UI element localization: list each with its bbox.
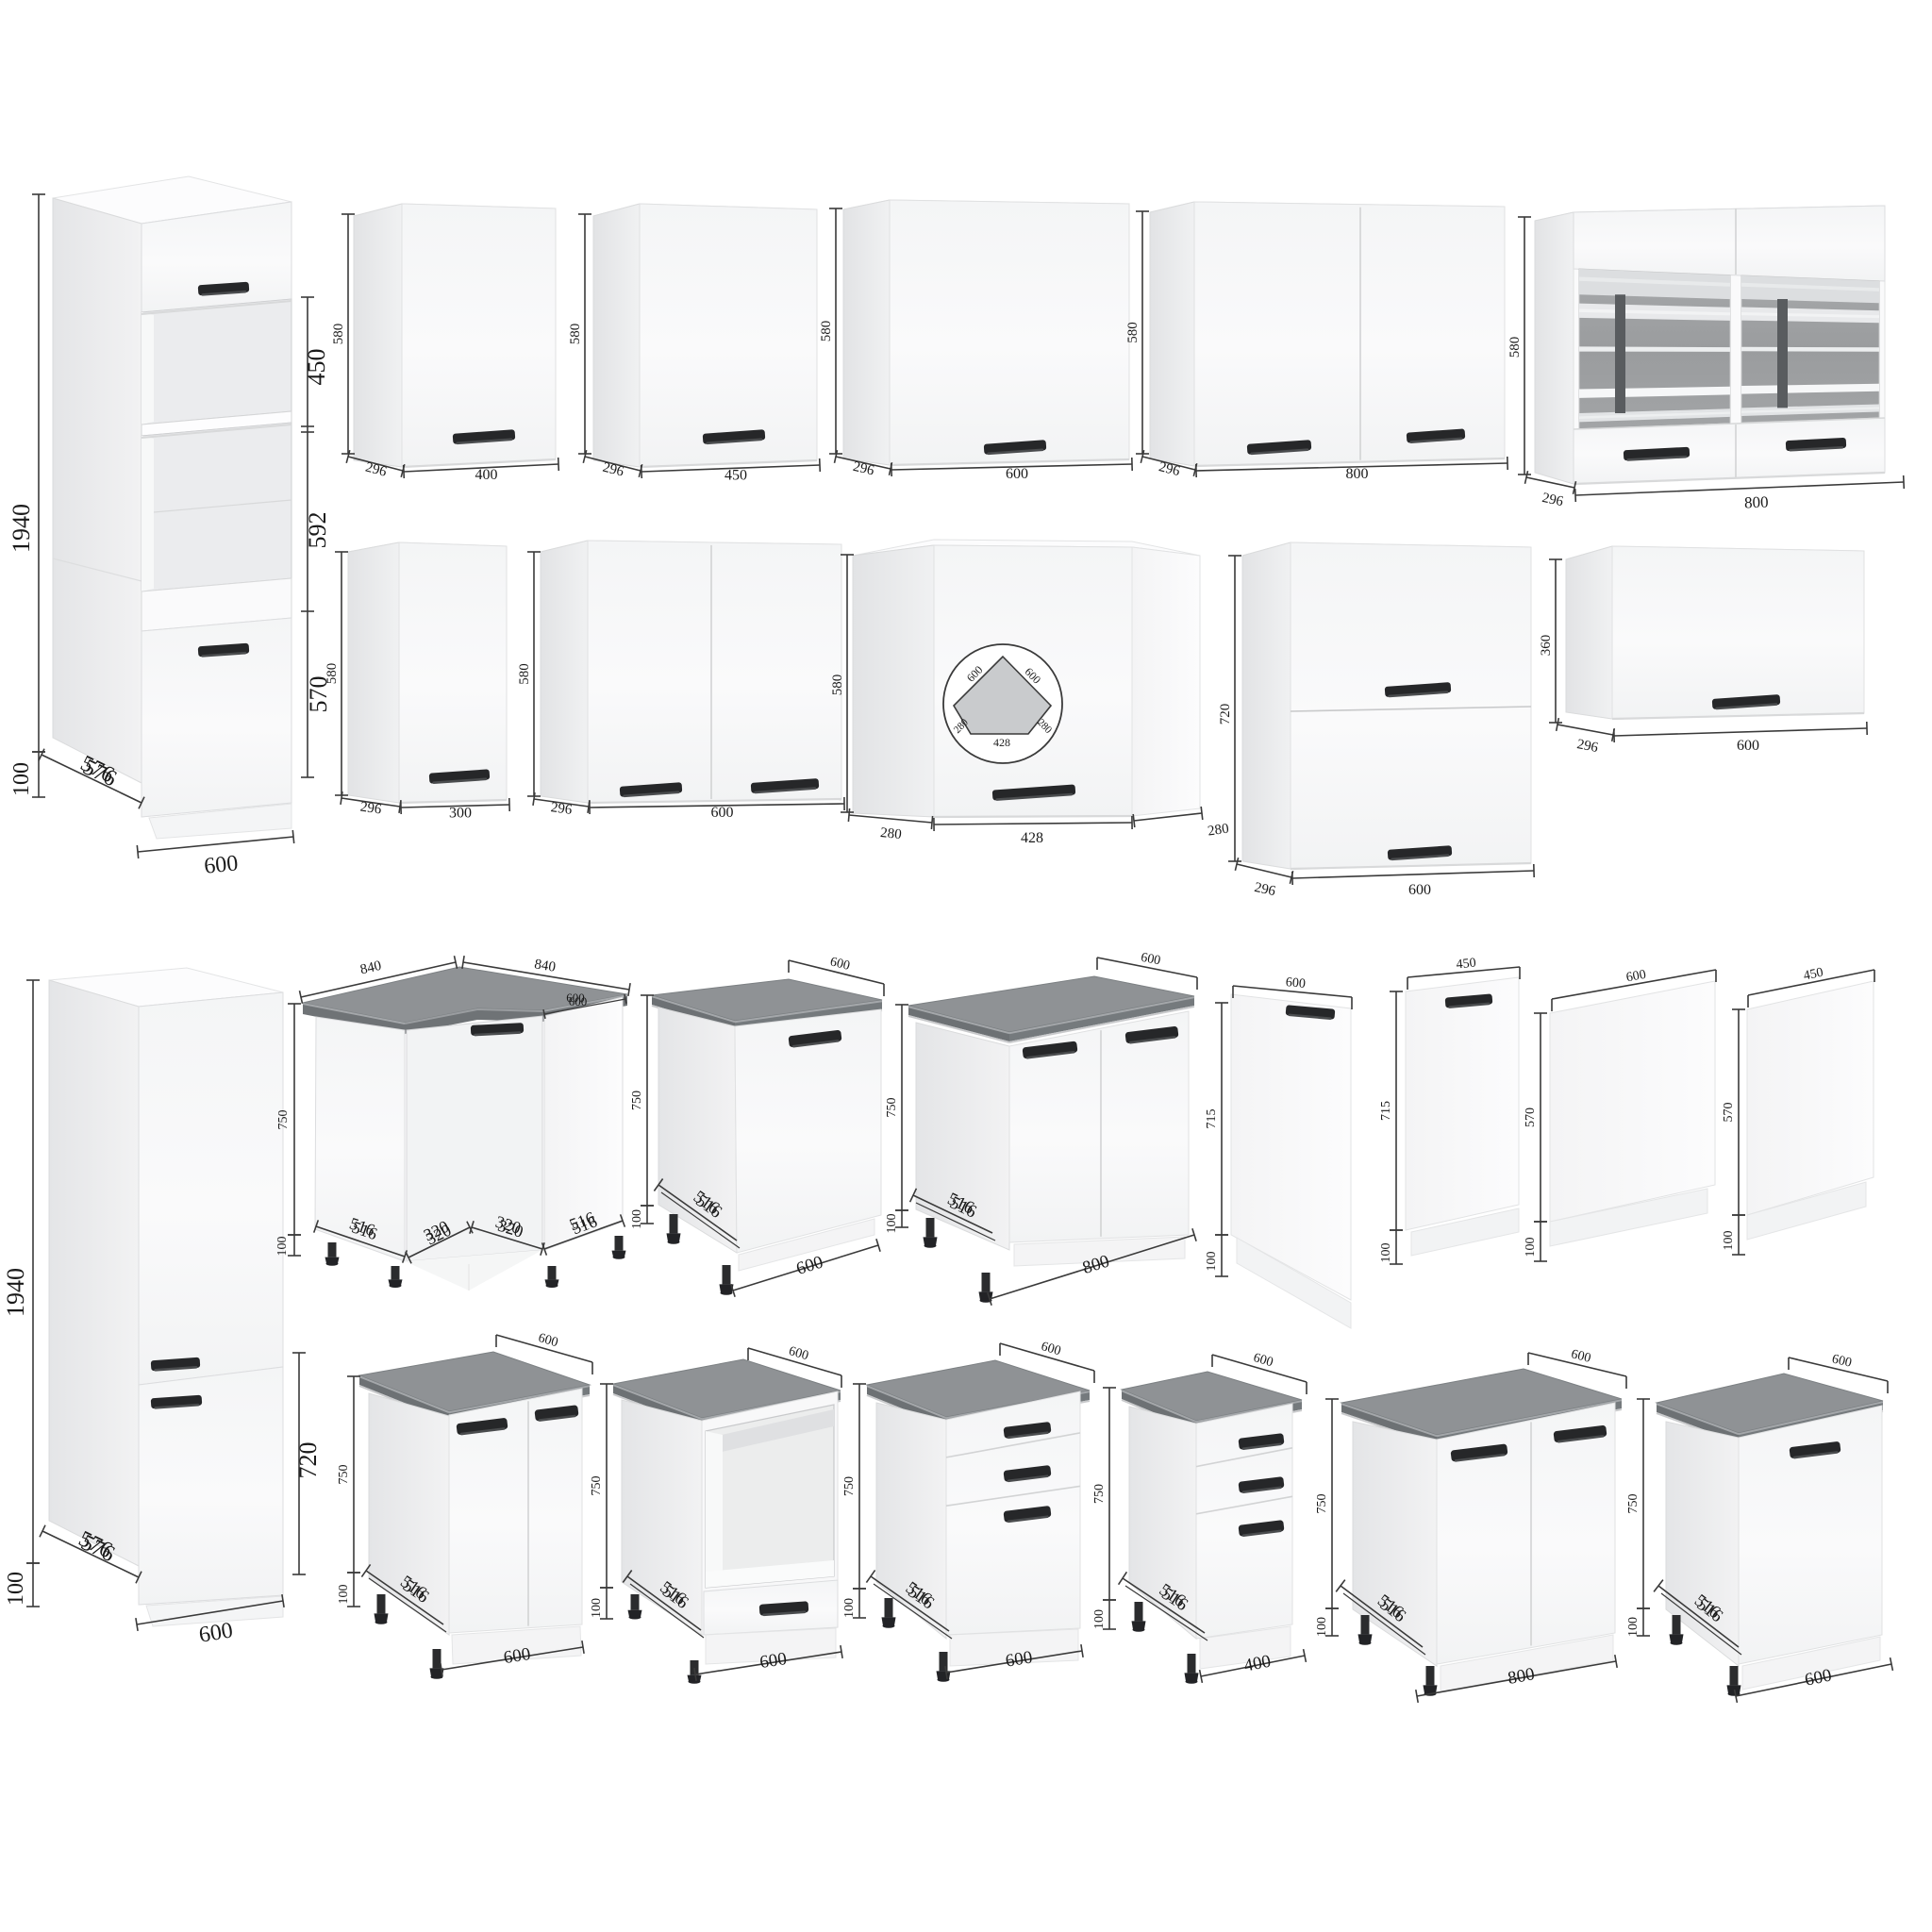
svg-text:750: 750 — [1626, 1494, 1641, 1514]
svg-text:750: 750 — [842, 1476, 857, 1496]
svg-text:296: 296 — [1541, 491, 1565, 509]
svg-text:600: 600 — [1285, 975, 1306, 991]
svg-text:296: 296 — [359, 800, 383, 818]
svg-text:600: 600 — [1408, 882, 1431, 898]
svg-text:570: 570 — [305, 676, 332, 713]
svg-text:580: 580 — [819, 321, 834, 342]
svg-text:600: 600 — [1006, 466, 1028, 482]
svg-text:100: 100 — [1092, 1609, 1107, 1629]
svg-text:1940: 1940 — [8, 504, 35, 553]
svg-text:280: 280 — [1207, 822, 1230, 840]
svg-text:600: 600 — [197, 1618, 235, 1647]
svg-text:450: 450 — [303, 349, 330, 386]
svg-text:400: 400 — [475, 467, 498, 483]
svg-text:570: 570 — [1524, 1108, 1538, 1127]
svg-text:360: 360 — [1539, 635, 1554, 657]
svg-text:750: 750 — [885, 1098, 899, 1118]
svg-text:715: 715 — [1205, 1109, 1219, 1129]
svg-text:428: 428 — [1021, 830, 1043, 846]
svg-text:750: 750 — [630, 1091, 644, 1110]
svg-text:600: 600 — [502, 1644, 531, 1668]
svg-text:600: 600 — [1140, 951, 1162, 969]
svg-text:750: 750 — [1315, 1494, 1329, 1514]
svg-text:100: 100 — [1626, 1617, 1641, 1637]
svg-text:580: 580 — [331, 324, 346, 345]
svg-text:600: 600 — [758, 1649, 788, 1673]
svg-text:570: 570 — [1722, 1103, 1736, 1123]
svg-text:600: 600 — [1803, 1665, 1833, 1690]
svg-text:100: 100 — [1205, 1252, 1219, 1272]
svg-text:100: 100 — [1722, 1231, 1736, 1251]
svg-text:800: 800 — [1507, 1664, 1537, 1689]
svg-text:715: 715 — [1379, 1101, 1393, 1121]
svg-text:580: 580 — [517, 663, 532, 685]
svg-text:296: 296 — [1253, 880, 1277, 899]
svg-text:100: 100 — [1524, 1238, 1538, 1257]
svg-text:592: 592 — [304, 512, 331, 549]
svg-text:800: 800 — [1346, 466, 1369, 482]
svg-text:296: 296 — [550, 800, 574, 818]
svg-text:600: 600 — [711, 805, 734, 821]
svg-text:750: 750 — [1092, 1484, 1107, 1504]
svg-text:750: 750 — [590, 1476, 604, 1496]
svg-text:580: 580 — [1507, 337, 1523, 358]
svg-text:450: 450 — [724, 468, 747, 484]
svg-text:100: 100 — [630, 1209, 644, 1229]
svg-text:800: 800 — [1744, 493, 1769, 512]
svg-text:720: 720 — [294, 1442, 322, 1479]
svg-text:720: 720 — [1218, 704, 1233, 725]
svg-text:300: 300 — [449, 806, 472, 822]
svg-text:280: 280 — [879, 825, 902, 842]
svg-text:580: 580 — [568, 324, 583, 345]
svg-text:100: 100 — [1315, 1617, 1329, 1637]
svg-text:1940: 1940 — [2, 1268, 29, 1317]
svg-text:100: 100 — [275, 1237, 290, 1257]
svg-text:100: 100 — [9, 762, 34, 796]
svg-text:580: 580 — [1125, 322, 1141, 343]
svg-text:600: 600 — [794, 1252, 825, 1279]
svg-text:100: 100 — [842, 1598, 857, 1618]
svg-text:100: 100 — [885, 1214, 899, 1234]
svg-text:400: 400 — [1242, 1652, 1273, 1676]
svg-text:750: 750 — [276, 1110, 291, 1130]
svg-text:600: 600 — [1004, 1647, 1033, 1671]
svg-text:100: 100 — [1379, 1243, 1393, 1263]
svg-text:600: 600 — [1737, 738, 1759, 754]
svg-text:296: 296 — [1575, 737, 1600, 756]
svg-text:428: 428 — [993, 736, 1010, 749]
svg-text:750: 750 — [337, 1465, 351, 1485]
svg-text:100: 100 — [337, 1585, 351, 1605]
svg-text:840: 840 — [533, 957, 557, 974]
svg-text:100: 100 — [4, 1572, 28, 1606]
svg-text:100: 100 — [590, 1598, 604, 1618]
svg-text:450: 450 — [1456, 957, 1476, 973]
svg-text:580: 580 — [830, 675, 845, 696]
svg-text:600: 600 — [203, 851, 239, 878]
svg-text:840: 840 — [358, 958, 382, 978]
